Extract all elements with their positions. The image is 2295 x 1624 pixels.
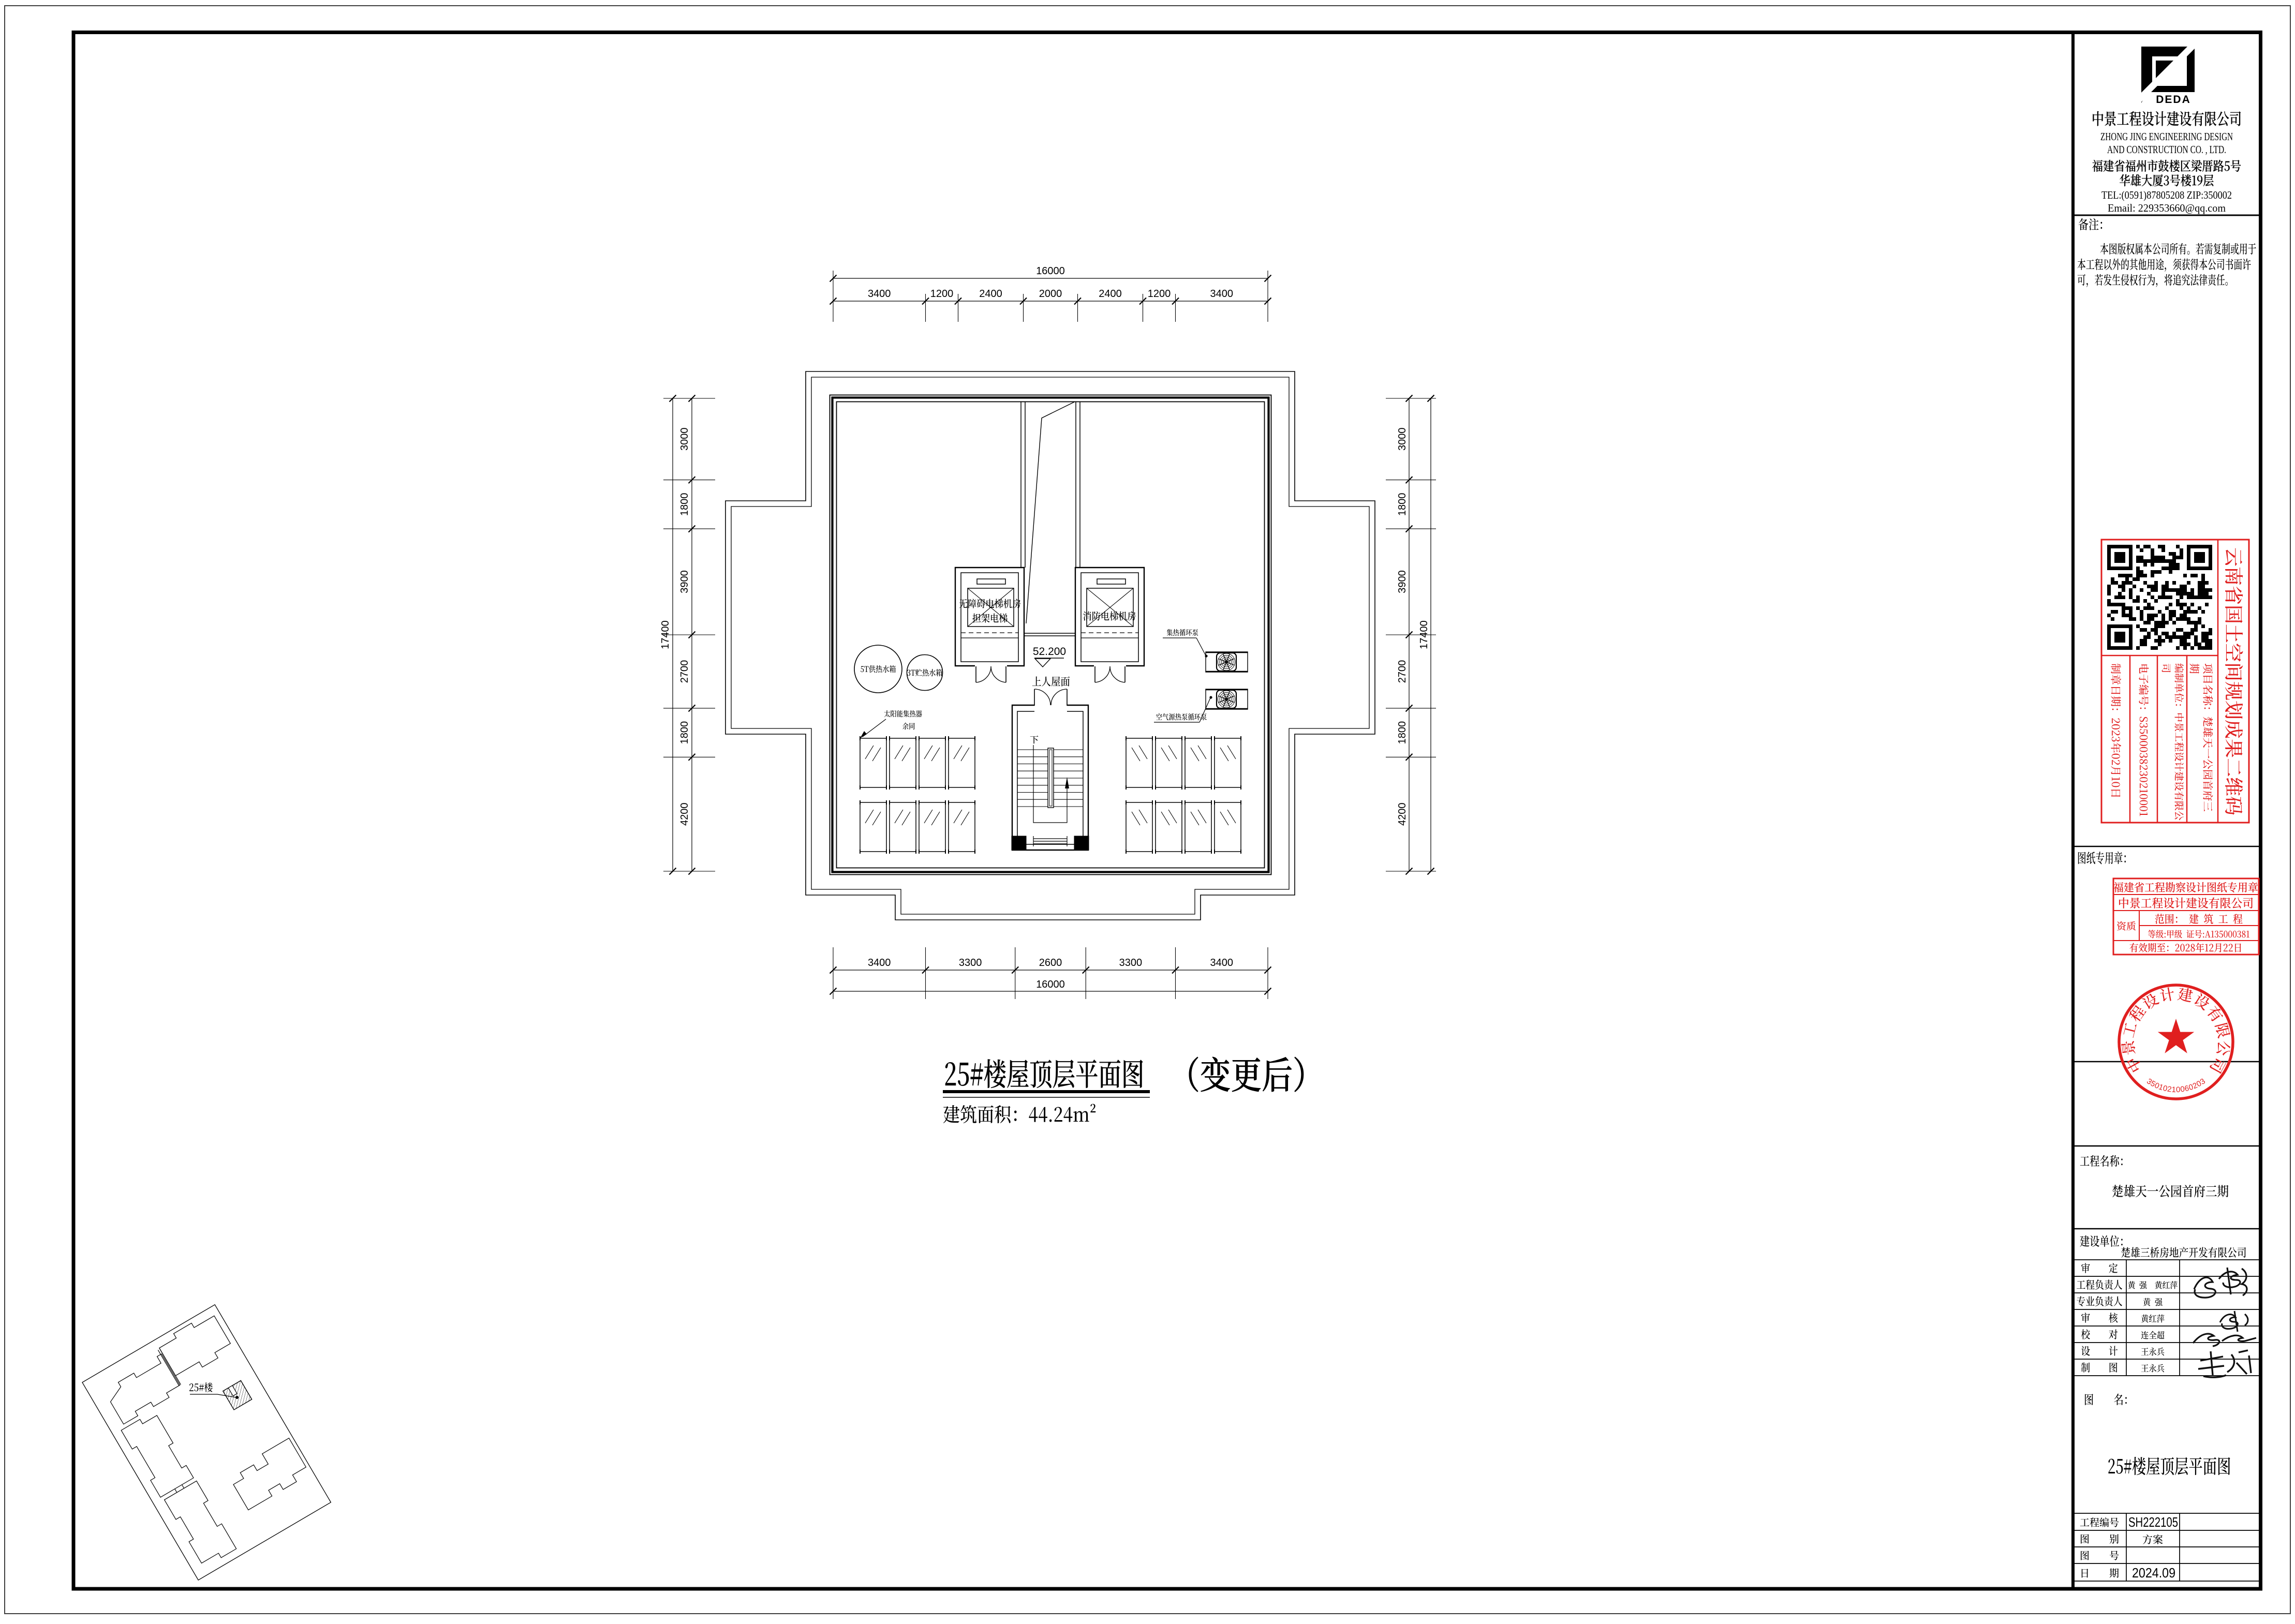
svg-text:1200: 1200 [930,288,954,300]
svg-text:1800: 1800 [679,493,690,516]
svg-text:1800: 1800 [1397,493,1408,516]
svg-text:4200: 4200 [679,802,690,826]
svg-text:4200: 4200 [1397,802,1408,826]
svg-text:16000: 16000 [1036,979,1065,990]
svg-text:3300: 3300 [1119,957,1143,969]
svg-text:2400: 2400 [979,288,1002,300]
svg-text:2400: 2400 [1099,288,1122,300]
svg-text:3000: 3000 [1397,428,1408,451]
svg-text:TEL:(0591)87805208 ZIP:: TEL:(0591)87805208 ZIP:350002 [2101,189,2232,201]
svg-text:3400: 3400 [1210,288,1234,300]
svg-text:3400: 3400 [868,957,891,969]
svg-text:SH222105: SH222105 [2128,1514,2178,1530]
svg-text:3000: 3000 [679,428,690,451]
svg-text:3400: 3400 [1210,957,1234,969]
svg-text:1800: 1800 [679,721,690,744]
svg-text:1200: 1200 [1148,288,1171,300]
svg-text:Email: 229353660@qq.com: Email: 229353660@qq.com [2108,202,2226,214]
svg-text:2700: 2700 [1397,660,1408,683]
svg-text:2024.09: 2024.09 [2132,1565,2175,1581]
svg-text:AND CONSTRUCTION CO. , LTD.: AND CONSTRUCTION CO. , LTD. [2107,143,2226,156]
svg-text:16000: 16000 [1036,265,1065,277]
svg-text:1800: 1800 [1397,721,1408,744]
svg-text:ZHONG JING ENGINEERING DESI: ZHONG JING ENGINEERING DESIGN [2100,130,2233,143]
svg-text:2700: 2700 [679,660,690,683]
svg-text:17400: 17400 [1418,620,1430,649]
svg-text:3400: 3400 [868,288,891,300]
svg-text:52.200: 52.200 [1033,646,1066,658]
svg-text:3300: 3300 [959,957,982,969]
svg-text:2600: 2600 [1039,957,1062,969]
svg-text:3900: 3900 [679,570,690,593]
svg-text:2000: 2000 [1039,288,1062,300]
svg-text:3900: 3900 [1397,570,1408,593]
svg-text:DEDA: DEDA [2156,94,2191,106]
